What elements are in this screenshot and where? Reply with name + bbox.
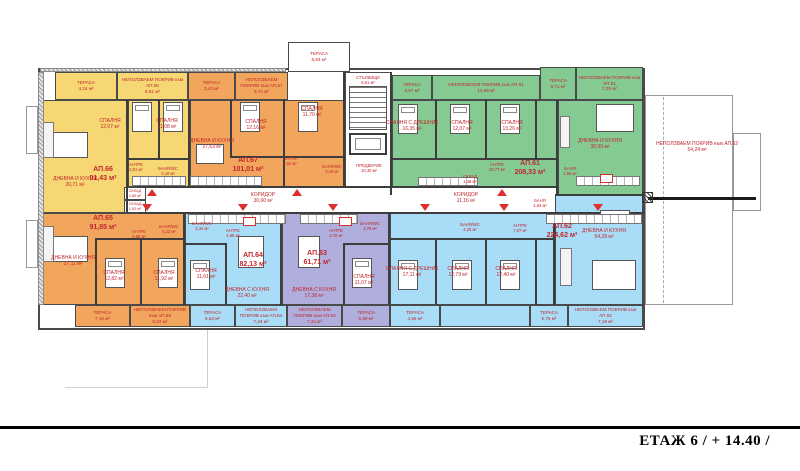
appliance-marker-icon <box>339 217 352 226</box>
pillow-icon <box>161 261 175 267</box>
room-label: ДНЕВНА И КУХНЯ27,63 м² <box>190 138 234 150</box>
room-label: ДНЕВНА И КУХНЯ54,28 м² <box>582 228 626 240</box>
zone-strip-roof-ap63: НЕПОЛЗВАЕМ ПОКРИВ към АП.637,34 м² <box>287 305 342 327</box>
zone-strip-roof-ap65: НЕПОЛЗВАЕМ ПОКРИВ към АП.655,63 м² <box>130 305 190 327</box>
room-label: СПАЛНЯ С ДРЕШНИК17,11 м² <box>386 266 438 278</box>
room-label: АНТРЕ5,85 м² <box>132 229 146 239</box>
zone-terrace-ap67: ТЕРАСА3,43 м² <box>188 72 235 100</box>
pillow-icon <box>503 107 517 113</box>
insulated-wall-hatch <box>38 72 44 305</box>
wall <box>390 238 555 240</box>
wall <box>185 243 227 245</box>
room-label: СПАЛНЯ12,16 м² <box>245 119 266 131</box>
apartment-label-ап67: АП.67101,01 м² <box>233 157 264 175</box>
wall <box>535 240 537 305</box>
zone-strip-terrace-ap62b: ТЕРАСА5,75 м² <box>530 305 568 327</box>
room-label: СПАЛНЯ С ДРЕШНИК16,35 м² <box>386 120 438 132</box>
room-label: СПАЛНЯ12,79 м² <box>447 266 468 278</box>
zone-label: ТЕРАСА8,83 м² <box>310 51 328 62</box>
zone-label: НЕПОЛЗВАЕМ ПОКРИВ към АП.647,34 м² <box>237 307 285 324</box>
room-label: СПАЛНЯ11,92 м² <box>153 270 174 282</box>
entrance-arrow-down-icon <box>238 204 248 211</box>
entrance-arrow-up-icon <box>497 189 507 196</box>
entrance-arrow-down-icon <box>328 204 338 211</box>
zone-label: НЕПОЛЗВАЕМ ПОКРИВ към АП.637,34 м² <box>289 307 340 324</box>
insulated-wall-hatch <box>40 68 286 72</box>
room-label: АНТРЕ7,07 м² <box>513 223 527 233</box>
appliance-marker-icon <box>243 217 256 226</box>
room-label: АНТРЕ20,77 м² <box>489 162 505 172</box>
room-label: БАНЯ4,63 м² <box>533 198 547 208</box>
zone-label: ТЕРАСА5,71 м² <box>549 78 567 89</box>
zone-label: ТЕРАСА3,07 м² <box>403 82 421 93</box>
room-label: БАНЯ/WC4,20 м² <box>460 222 480 232</box>
room-label: БАНЯ/WC2,18 м² <box>158 166 178 176</box>
zone-label: НЕПОЛЗВАЕМ ПОКРИВ към АП.668,91 м² <box>119 77 185 94</box>
zone-strip-terrace-ap63: ТЕРАСА5,90 м² <box>342 305 390 327</box>
entrance-arrow-up-icon <box>147 189 157 196</box>
zone-corridor <box>138 187 558 213</box>
kitchen-counter-icon <box>190 176 262 186</box>
apartment-label-ап65: АП.6591,85 м² <box>90 215 117 233</box>
lower-floor-outline <box>207 330 208 388</box>
sofa-icon <box>560 248 572 286</box>
room-label: ДНЕВНА С КУХНЯ17,38 м² <box>292 287 336 299</box>
apartment-label-ап62: АП.62224,62 м² <box>547 223 578 241</box>
pillow-icon <box>166 105 180 111</box>
room-label: АНТРЕ3,81 м² <box>129 162 143 172</box>
table-icon <box>596 104 634 132</box>
entrance-arrow-down-icon <box>499 204 509 211</box>
wall <box>556 100 558 195</box>
zone-label: НЕПОЛЗВАЕМ ПОКРИВ към АП.627,19 м² <box>570 307 640 324</box>
zone-roof-ap61: НЕПОЛЗВАЕМ ПОКРИВ към АП.6114,68 м² <box>432 75 540 100</box>
bed-icon <box>132 102 152 132</box>
entrance-arrow-up-icon <box>292 189 302 196</box>
room-label: АНТРЕ3,78 м² <box>329 228 343 238</box>
floor-title: ЕТАЖ 6 / + 14.40 / <box>639 433 770 450</box>
annex-dash-line <box>663 97 664 303</box>
entrance-arrow-down-icon <box>420 204 430 211</box>
room-label: АНТРЕ3,62 м² <box>283 156 297 166</box>
pillow-icon <box>453 107 467 113</box>
zone-label: ТЕРАСА4,24 м² <box>77 80 95 91</box>
zone-label: ТЕРАСА7,16 м² <box>94 310 112 321</box>
section-cut-line <box>648 197 756 200</box>
zone-label: НЕПОЛЗВАЕМ ПОКРИВ към АП.617,39 м² <box>578 75 640 92</box>
pillow-icon <box>243 105 257 111</box>
pillow-icon <box>135 105 149 111</box>
wall <box>535 100 537 160</box>
wall <box>555 194 645 196</box>
balcony-outline <box>26 106 38 154</box>
room-label: ДНЕВНА И КУХНЯ30,90 м² <box>578 138 622 150</box>
zone-strip-roof-ap62: НЕПОЛЗВАЕМ ПОКРИВ към АП.627,19 м² <box>568 305 643 327</box>
stairs-icon <box>349 86 387 130</box>
room-label: СПАЛНЯ11,08 м² <box>156 118 177 130</box>
zone-label: СКЛАД1,52 м² <box>129 202 142 211</box>
room-label: ДНЕВНА С КУХНЯ22,40 м² <box>225 287 269 299</box>
wall <box>343 243 390 245</box>
room-label: СПАЛНЯ12,82 м² <box>103 270 124 282</box>
room-label: АНТРЕ4,95 м² <box>226 228 240 238</box>
title-rule <box>0 426 800 429</box>
zone-strip-ap62-plain <box>440 305 530 327</box>
lower-floor-outline <box>65 387 208 388</box>
room-label: ПРЕДВЕРИЕ10,30 м² <box>356 163 382 173</box>
pillow-icon <box>108 261 122 267</box>
balcony-outline <box>26 220 38 268</box>
zone-label: НЕПОЛЗВАЕМ ПОКРИВ към АП.6114,68 м² <box>448 82 523 93</box>
wall <box>283 100 285 187</box>
wall <box>343 245 345 305</box>
zone-label: ТЕРАСА5,90 м² <box>357 310 375 321</box>
zone-label: НЕПОЛЗВАЕМ ПОКРИВ към АП.673,74 м² <box>237 77 286 94</box>
zone-label: НЕПОЛЗВАЕМ ПОКРИВ към АП.655,63 м² <box>132 307 188 324</box>
wall <box>183 213 185 305</box>
apartment-label-ап63: АП.6361,71 м² <box>304 250 331 268</box>
room-label: СПАЛНЯ11,07 м² <box>353 274 374 286</box>
apartment-label-ап64: АП.6482,13 м² <box>240 252 267 270</box>
zone-label: ТЕРАСА5,63 м² <box>204 310 222 321</box>
annex-label: НЕПОЛЗВАЕМ ПОКРИВ към АП.6254,24 м² <box>656 141 738 153</box>
table-icon <box>52 132 88 158</box>
room-label: СПАЛНЯ12,40 м² <box>495 266 516 278</box>
zone-strip-terrace-ap64: ТЕРАСА5,63 м² <box>190 305 235 327</box>
entrance-arrow-down-icon <box>593 204 603 211</box>
elevator-icon <box>349 133 387 155</box>
floorplan-canvas: ЕТАЖ 6 / + 14.40 / ТЕРАСА4,24 м²НЕПОЛЗВА… <box>0 0 800 471</box>
room-label: КОРИДОР30,60 м² <box>251 192 275 204</box>
pillow-icon <box>401 107 415 113</box>
wall <box>128 158 190 160</box>
wall <box>138 186 558 188</box>
kitchen-counter-icon <box>132 176 186 186</box>
room-label: СПАЛНЯ13,26 м² <box>501 120 522 132</box>
zone-label: ТЕРАСА3,43 м² <box>203 80 221 91</box>
wall <box>388 213 390 305</box>
room-label: БАНЯ4,50 м² <box>563 166 577 176</box>
wall <box>126 100 128 213</box>
apartment-label-ап61: АП.61208,33 м² <box>515 160 546 178</box>
wall <box>390 72 392 195</box>
wall <box>485 100 487 160</box>
zone-strip-terrace-ap65: ТЕРАСА7,16 м² <box>75 305 130 327</box>
room-label: СПАЛНЯ12,07 м² <box>451 120 472 132</box>
zone-terrace-ap61-left: ТЕРАСА3,07 м² <box>392 75 432 100</box>
zone-terrace-stair: ТЕРАСА8,83 м² <box>288 42 350 72</box>
wall <box>140 240 142 305</box>
room-label: БАНЯ/WC2,19 м² <box>322 164 342 174</box>
room-label: СПАЛНЯ11,70 м² <box>301 106 322 118</box>
appliance-marker-icon <box>600 174 613 183</box>
wall <box>280 213 282 305</box>
room-label: СПАЛНЯ12,07 м² <box>99 118 120 130</box>
room-label: БАНЯ/WC3,34 м² <box>192 221 212 231</box>
roof-annex <box>645 95 733 305</box>
pillow-icon <box>355 261 369 267</box>
apartment-label-ап66: АП.6691,43 м² <box>90 166 117 184</box>
entrance-arrow-down-icon <box>142 204 152 211</box>
room-label: БАНЯ/WC5,23 м² <box>159 224 179 234</box>
zone-terrace-ap66: ТЕРАСА4,24 м² <box>55 72 117 100</box>
zone-roof-ap61-right: НЕПОЛЗВАЕМ ПОКРИВ към АП.617,39 м² <box>576 67 643 100</box>
wall <box>343 72 345 187</box>
zone-label: ТЕРАСА5,75 м² <box>540 310 558 321</box>
wall <box>485 240 487 305</box>
room-label: КОРИДОР11,16 м² <box>454 192 478 204</box>
zone-terrace-ap61-right: ТЕРАСА5,71 м² <box>540 67 576 100</box>
room-label: СПАЛНЯ11,61 м² <box>195 268 216 280</box>
zone-label: ТЕРАСА4,56 м² <box>406 310 424 321</box>
room-label: ДНЕВНА И КУХНЯ27,11 м² <box>51 255 95 267</box>
section-marker-icon <box>642 192 653 203</box>
zone-strip-roof-ap64: НЕПОЛЗВАЕМ ПОКРИВ към АП.647,34 м² <box>235 305 287 327</box>
zone-label: СКЛАД1,80 м² <box>129 189 142 198</box>
table-icon <box>592 260 636 290</box>
zone-roof-ap67: НЕПОЛЗВАЕМ ПОКРИВ към АП.673,74 м² <box>235 72 288 100</box>
room-label: СТЪЛБИЩЕ8,61 м² <box>356 75 380 85</box>
sofa-icon <box>560 116 570 148</box>
zone-roof-ap66: НЕПОЛЗВАЕМ ПОКРИВ към АП.668,91 м² <box>117 72 188 100</box>
room-label: БАНЯ/WC3,79 м² <box>360 221 380 231</box>
room-label: СКЛАД1,48 м² <box>463 174 477 184</box>
zone-strip-terrace-ap62a: ТЕРАСА4,56 м² <box>390 305 440 327</box>
wall <box>95 240 97 305</box>
